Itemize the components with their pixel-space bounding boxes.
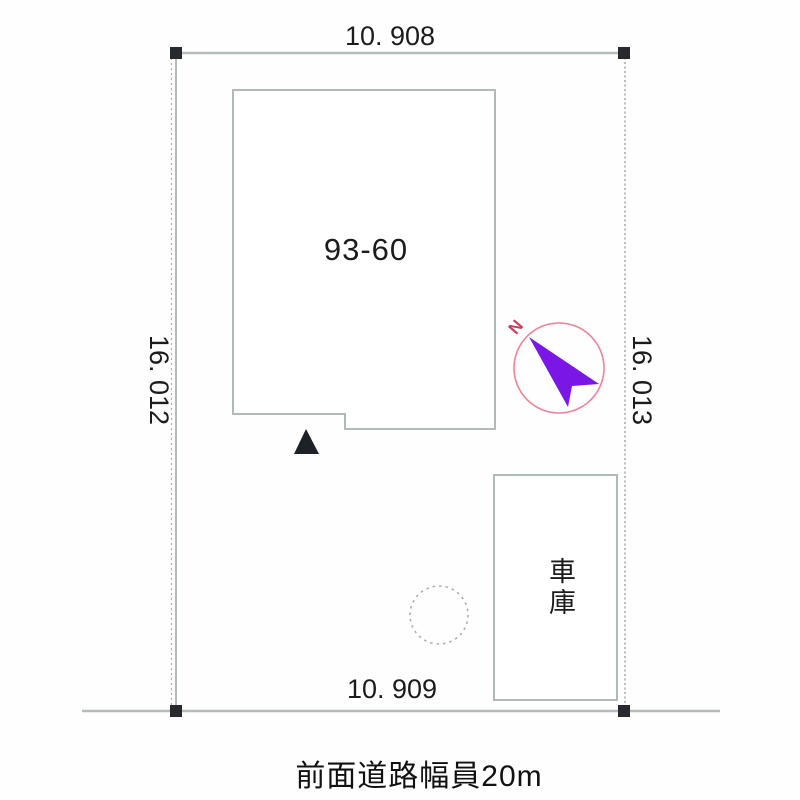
dimension-top: 10. 908 bbox=[310, 21, 470, 52]
entrance-triangle-icon bbox=[294, 429, 319, 454]
dimension-left: 16. 012 bbox=[146, 300, 174, 460]
corner-marker-bottom-left bbox=[170, 705, 182, 717]
dotted-circle bbox=[410, 586, 468, 644]
site-plan: 10. 908 10. 909 16. 012 16. 013 93-60 車庫… bbox=[0, 0, 800, 800]
corner-marker-top-left bbox=[170, 47, 182, 59]
corner-marker-bottom-right bbox=[618, 705, 630, 717]
dimension-right: 16. 013 bbox=[629, 300, 657, 460]
corner-marker-top-right bbox=[618, 47, 630, 59]
road-width-caption: 前面道路幅員20m bbox=[219, 751, 619, 795]
parcel-number-label: 93-60 bbox=[276, 232, 456, 268]
north-arrow-icon bbox=[529, 337, 599, 407]
garage-label: 車庫 bbox=[541, 557, 580, 619]
dimension-bottom: 10. 909 bbox=[312, 674, 472, 705]
